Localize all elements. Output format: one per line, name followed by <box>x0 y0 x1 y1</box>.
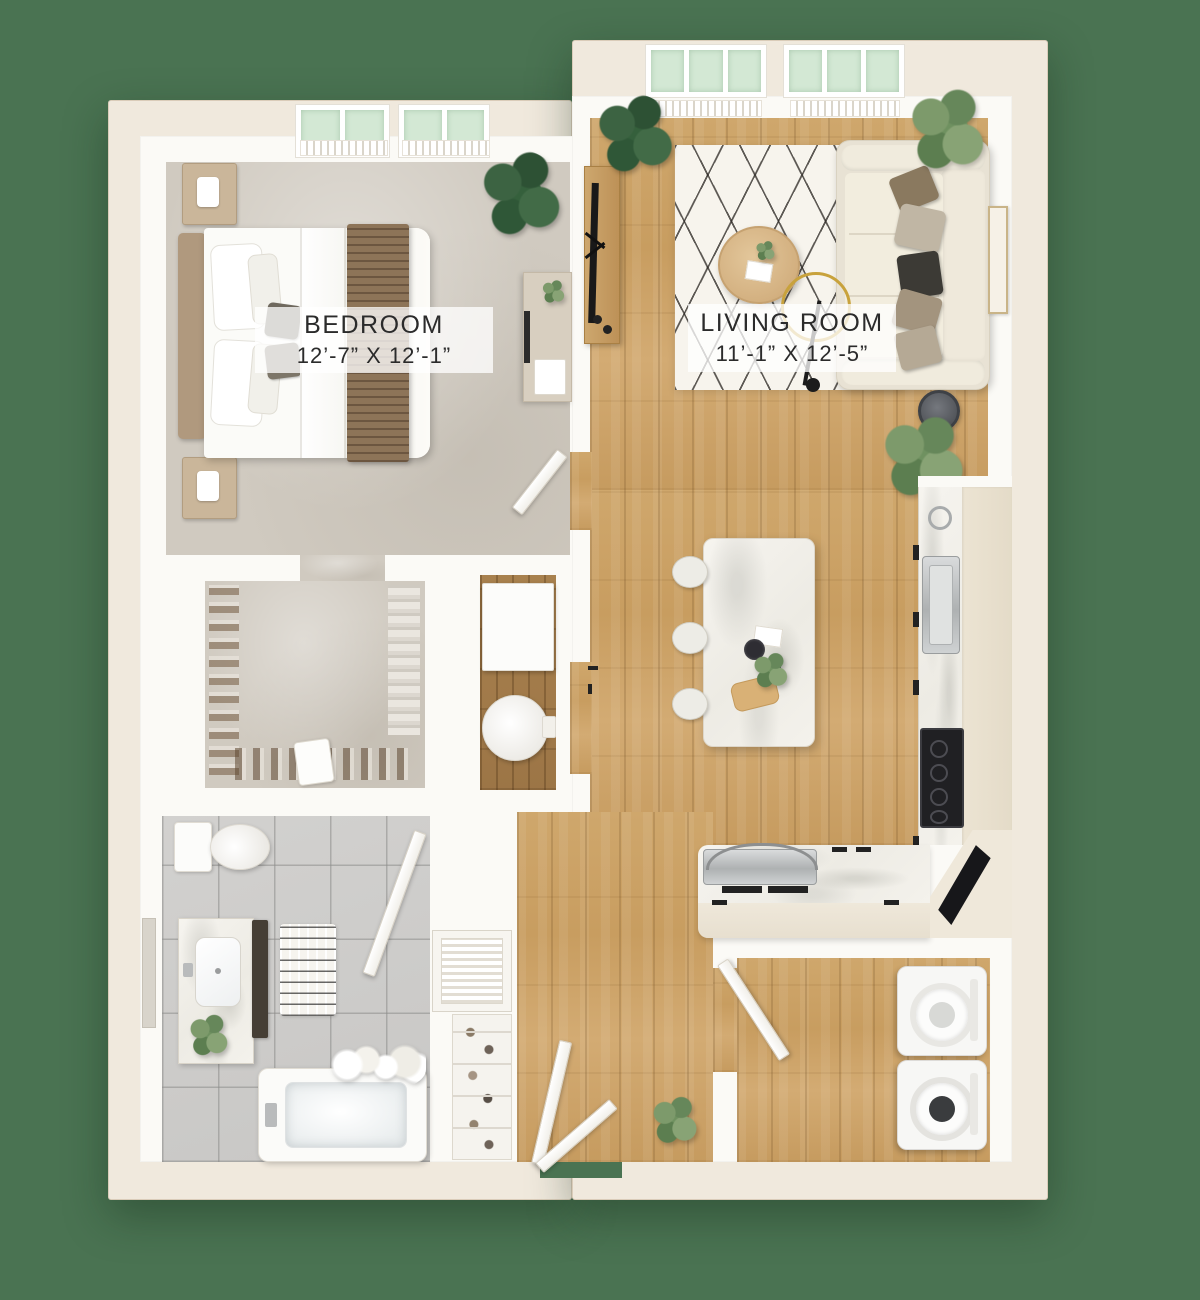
desk-tray <box>534 359 566 395</box>
cabinet-handle <box>884 900 899 905</box>
living-plant-top-left <box>592 94 676 178</box>
vanity-cabinet-tower <box>252 920 268 1038</box>
cabinet-handle <box>913 612 919 627</box>
speaker <box>593 315 602 324</box>
living-room-label-dims: 11’-1” X 12’-5” <box>716 341 869 367</box>
wc-cabinet <box>482 583 554 671</box>
bedroom-desk <box>523 272 572 402</box>
closet-storage-bag <box>293 738 335 787</box>
dryer-door <box>910 1077 974 1141</box>
living-room-label-name: LIVING ROOM <box>700 309 883 338</box>
ceiling-grille <box>790 100 900 117</box>
utility-closet <box>432 930 512 1012</box>
bed-headboard <box>178 233 206 439</box>
dryer-panel <box>970 1073 978 1135</box>
cabinet-handle <box>856 847 871 852</box>
cabinet-handle <box>913 680 919 695</box>
water-closet-doorway <box>570 662 592 774</box>
kitchen-island <box>703 538 815 747</box>
cabinet-handle <box>913 545 919 560</box>
bedroom-label: BEDROOM 12’-7” X 12’-1” <box>255 307 493 373</box>
vanity-sink <box>195 937 241 1007</box>
toilet-bowl <box>210 824 270 870</box>
wall-art <box>988 206 1008 314</box>
closet-shoe-row-left <box>209 585 239 775</box>
window-pane <box>866 50 899 92</box>
burner <box>930 740 948 758</box>
nightstand <box>182 163 237 225</box>
sink-drain <box>215 968 221 974</box>
table-book <box>745 260 774 283</box>
bathtub-basin <box>285 1082 407 1148</box>
bar-stool <box>672 688 708 720</box>
ceiling-grille <box>300 140 388 156</box>
nightstand-lamp <box>197 471 219 501</box>
floorplan-canvas: BEDROOM 12’-7” X 12’-1” <box>0 0 1200 1300</box>
window-pane <box>827 50 860 92</box>
door-jamb-mark <box>588 666 598 670</box>
shower-curtain <box>330 1038 426 1090</box>
bar-stool <box>672 622 708 654</box>
dryer-drum <box>929 1096 955 1122</box>
ceiling-grille <box>402 140 490 156</box>
window-pane <box>689 50 722 92</box>
burner <box>930 810 948 824</box>
washer-drum <box>929 1002 955 1028</box>
nightstand <box>182 457 237 519</box>
desk-monitor <box>524 311 530 363</box>
living-plant-top-right <box>904 84 988 178</box>
toilet-tank <box>174 822 212 872</box>
bathroom-plant <box>186 1012 230 1060</box>
kitchen-cabinets <box>962 487 1012 845</box>
living-room-window-left <box>645 44 767 98</box>
sofa-back <box>941 169 985 361</box>
tv-console <box>584 166 620 344</box>
dryer <box>897 1060 987 1150</box>
closet-doorway <box>300 555 385 583</box>
cabinet-handle <box>832 847 847 852</box>
chevron-bath-mat <box>280 924 336 1016</box>
bedroom-label-name: BEDROOM <box>304 311 444 340</box>
oven-slot <box>768 886 808 893</box>
bathroom-mirror <box>142 918 156 1028</box>
window-pane <box>651 50 684 92</box>
window-pane <box>789 50 822 92</box>
bedroom-doorway <box>570 452 592 530</box>
washer-panel <box>970 979 978 1041</box>
louver-vent <box>441 938 503 1004</box>
vanity-faucet <box>183 963 193 977</box>
washer <box>897 966 987 1056</box>
bedroom-label-dims: 12’-7” X 12’-1” <box>297 343 451 369</box>
living-room-label: LIVING ROOM 11’-1” X 12’-5” <box>688 304 896 372</box>
washer-door <box>910 983 974 1047</box>
desk-plant <box>540 279 566 305</box>
sink-basin <box>929 565 953 645</box>
oven-slot <box>722 886 762 893</box>
cabinet-handle <box>712 900 727 905</box>
bathtub-faucet <box>265 1103 277 1127</box>
wc-toilet-hinge <box>542 716 556 738</box>
burner <box>930 764 948 782</box>
table-plant <box>754 240 776 262</box>
door-jamb-mark <box>588 684 592 694</box>
speaker <box>603 325 612 334</box>
kitchen-faucet <box>928 506 952 530</box>
bedroom-plant <box>477 150 563 242</box>
entry-plant <box>648 1094 700 1148</box>
wc-toilet <box>482 695 548 761</box>
window-pane <box>728 50 761 92</box>
island-plant <box>750 651 790 691</box>
floor-lamp-base <box>806 378 820 392</box>
kitchen-sink <box>922 556 960 654</box>
cooktop <box>920 728 964 828</box>
living-room-window-right <box>783 44 905 98</box>
entry-shoe-closet <box>452 1014 512 1160</box>
nightstand-lamp <box>197 177 219 207</box>
closet-hanging-clothes <box>388 585 420 735</box>
bar-stool <box>672 556 708 588</box>
burner <box>930 788 948 806</box>
